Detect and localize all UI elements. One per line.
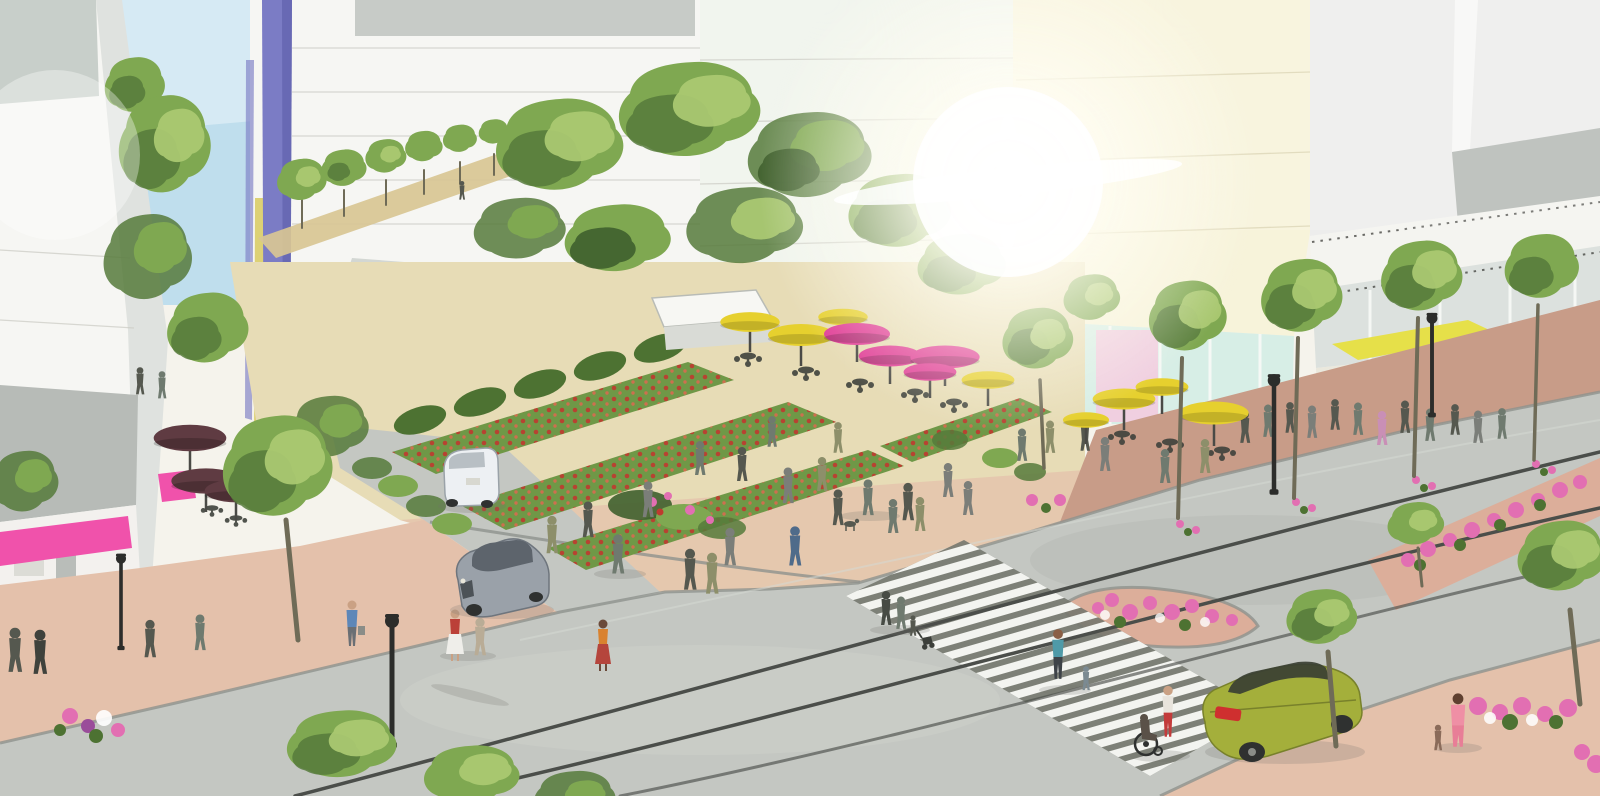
cafe-umbrella-yellow [720, 312, 779, 332]
rendering-stage [0, 0, 1600, 796]
rendering-canvas [0, 0, 1600, 796]
cafe-table [201, 505, 223, 517]
hubcap [1248, 748, 1256, 756]
tree [223, 415, 333, 515]
cafe-umbrella-maroon [154, 425, 227, 451]
license-plate [466, 478, 480, 485]
cafe-umbrella-yellow [1179, 401, 1248, 424]
shopping-bag [358, 626, 365, 635]
white-minivan [438, 448, 506, 513]
headlight [461, 579, 466, 584]
